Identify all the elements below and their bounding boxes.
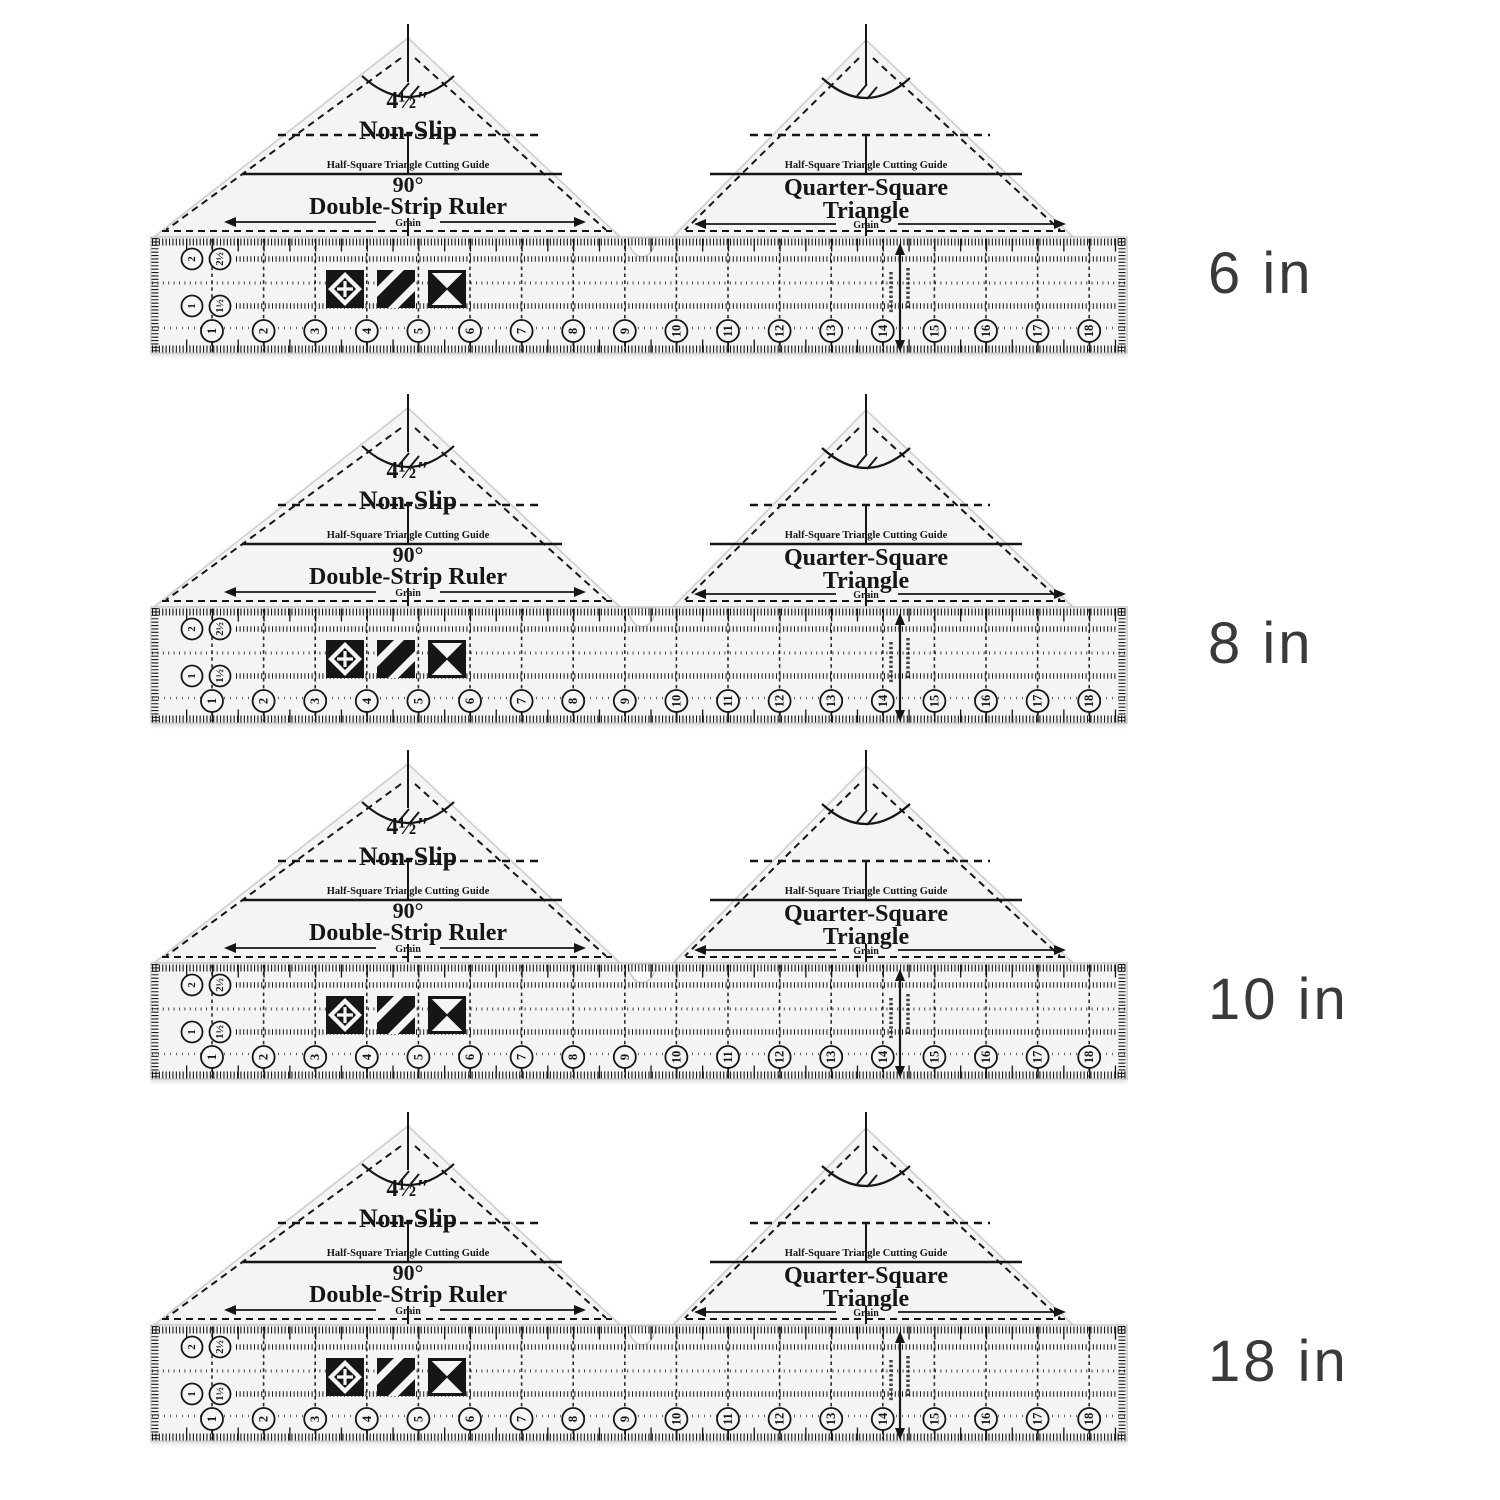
inch-number: 11 bbox=[721, 325, 735, 337]
ruler-set-graphic: 4½″ Non-Slip Half-Square Triangle Cuttin… bbox=[150, 22, 1128, 367]
inch-number: 16 bbox=[979, 1051, 993, 1064]
inch-number: 7 bbox=[515, 698, 529, 704]
inch-number: 7 bbox=[515, 328, 529, 334]
inch-number: 10 bbox=[669, 1051, 683, 1064]
square-in-square-block-icon bbox=[326, 640, 364, 678]
ruler-set-graphic: 4½″ Non-Slip Half-Square Triangle Cuttin… bbox=[150, 1110, 1128, 1455]
inch-number: 17 bbox=[1031, 1051, 1045, 1064]
inch-number: 4 bbox=[360, 327, 374, 334]
ruler-size-text: 4½″ bbox=[386, 88, 429, 114]
grain-text: Grain bbox=[395, 944, 421, 955]
inch-number: 4 bbox=[360, 1415, 374, 1422]
inch-number: 15 bbox=[927, 1051, 941, 1064]
diagonal-stripes-block-icon bbox=[377, 1358, 415, 1396]
inch-number: 9 bbox=[618, 698, 632, 704]
strip-width-number: 1½ bbox=[214, 299, 226, 313]
hourglass-block-icon bbox=[428, 640, 466, 678]
size-label: 6 in bbox=[1208, 242, 1314, 306]
ruler-title-text: Double-Strip Ruler bbox=[309, 564, 507, 590]
inch-number: 13 bbox=[824, 695, 838, 708]
ruler-set-row: 4½″ Non-Slip Half-Square Triangle Cuttin… bbox=[0, 1110, 1500, 1455]
inch-number: 6 bbox=[463, 1416, 477, 1422]
inch-number: 6 bbox=[463, 698, 477, 704]
inch-number: 3 bbox=[308, 1416, 322, 1422]
cutting-guide-text: Half-Square Triangle Cutting Guide bbox=[785, 1248, 948, 1259]
cutting-guide-text: Half-Square Triangle Cutting Guide bbox=[785, 886, 948, 897]
inch-number: 4 bbox=[360, 1053, 374, 1060]
inch-number: 11 bbox=[721, 1413, 735, 1425]
grain-text: Grain bbox=[395, 218, 421, 229]
inch-number: 10 bbox=[669, 325, 683, 338]
ruler-title-text: Double-Strip Ruler bbox=[309, 194, 507, 220]
inch-number: 7 bbox=[515, 1054, 529, 1060]
strip-width-number: 1½ bbox=[214, 1387, 226, 1401]
square-in-square-block-icon bbox=[326, 996, 364, 1034]
inch-number: 13 bbox=[824, 1413, 838, 1426]
inch-number: 2 bbox=[257, 1416, 271, 1422]
strip-width-number: 1½ bbox=[214, 669, 226, 683]
inch-number: 16 bbox=[979, 325, 993, 338]
ruler-set-row: 4½″ Non-Slip Half-Square Triangle Cuttin… bbox=[0, 22, 1500, 367]
inch-number: 17 bbox=[1031, 325, 1045, 338]
product-collage: 4½″ Non-Slip Half-Square Triangle Cuttin… bbox=[0, 0, 1500, 1500]
inch-number: 14 bbox=[876, 324, 890, 337]
inch-number: 1 bbox=[205, 328, 219, 334]
inch-number: 18 bbox=[1082, 695, 1096, 708]
ruler-set-graphic: 4½″ Non-Slip Half-Square Triangle Cuttin… bbox=[150, 392, 1128, 737]
inch-number: 1 bbox=[205, 1416, 219, 1422]
hourglass-block-icon bbox=[428, 1358, 466, 1396]
ruler-set-row: 4½″ Non-Slip Half-Square Triangle Cuttin… bbox=[0, 748, 1500, 1093]
inch-number: 2 bbox=[257, 1054, 271, 1060]
square-in-square-block-icon bbox=[326, 270, 364, 308]
inch-number: 8 bbox=[566, 698, 580, 704]
inch-number: 4 bbox=[360, 697, 374, 704]
strip-width-number: 1½ bbox=[214, 1025, 226, 1039]
cutting-guide-text: Half-Square Triangle Cutting Guide bbox=[327, 886, 490, 897]
inch-number: 1 bbox=[205, 698, 219, 704]
inch-number: 11 bbox=[721, 1051, 735, 1063]
strip-width-number: 2 bbox=[186, 626, 198, 632]
inch-number: 9 bbox=[618, 328, 632, 334]
hourglass-block-icon bbox=[428, 996, 466, 1034]
ruler-set-graphic: 4½″ Non-Slip Half-Square Triangle Cuttin… bbox=[150, 748, 1128, 1093]
inch-number: 13 bbox=[824, 1051, 838, 1064]
inch-number: 12 bbox=[773, 325, 787, 338]
inch-number: 10 bbox=[669, 695, 683, 708]
inch-number: 5 bbox=[411, 1054, 425, 1060]
inch-number: 15 bbox=[927, 695, 941, 708]
nonslip-text: Non-Slip bbox=[359, 842, 457, 871]
nonslip-text: Non-Slip bbox=[359, 486, 457, 515]
strip-width-number: 2 bbox=[186, 256, 198, 262]
inch-number: 16 bbox=[979, 1413, 993, 1426]
size-label: 18 in bbox=[1208, 1330, 1349, 1394]
inch-number: 12 bbox=[773, 695, 787, 708]
inch-number: 16 bbox=[979, 695, 993, 708]
inch-number: 5 bbox=[411, 1416, 425, 1422]
inch-number: 8 bbox=[566, 1054, 580, 1060]
inch-number: 10 bbox=[669, 1413, 683, 1426]
ruler-size-text: 4½″ bbox=[386, 814, 429, 840]
diagonal-stripes-block-icon bbox=[377, 996, 415, 1034]
inch-number: 3 bbox=[308, 328, 322, 334]
grain-text: Grain bbox=[853, 590, 879, 601]
inch-number: 18 bbox=[1082, 325, 1096, 338]
square-in-square-block-icon bbox=[326, 1358, 364, 1396]
inch-number: 14 bbox=[876, 1412, 890, 1425]
inch-number: 9 bbox=[618, 1054, 632, 1060]
ruler-set-row: 4½″ Non-Slip Half-Square Triangle Cuttin… bbox=[0, 392, 1500, 737]
strip-width-number: 1 bbox=[186, 303, 198, 309]
grain-text: Grain bbox=[853, 1308, 879, 1319]
ruler-size-text: 4½″ bbox=[386, 1176, 429, 1202]
inch-number: 1 bbox=[205, 1054, 219, 1060]
inch-number: 14 bbox=[876, 694, 890, 707]
inch-number: 2 bbox=[257, 698, 271, 704]
inch-number: 18 bbox=[1082, 1413, 1096, 1426]
strip-width-number: 2½ bbox=[214, 978, 226, 992]
inch-number: 18 bbox=[1082, 1051, 1096, 1064]
inch-number: 14 bbox=[876, 1050, 890, 1063]
grain-text: Grain bbox=[395, 1306, 421, 1317]
strip-width-number: 2 bbox=[186, 982, 198, 988]
cutting-guide-text: Half-Square Triangle Cutting Guide bbox=[785, 530, 948, 541]
diagonal-stripes-block-icon bbox=[377, 270, 415, 308]
inch-number: 15 bbox=[927, 325, 941, 338]
inch-number: 6 bbox=[463, 328, 477, 334]
strip-width-number: 1 bbox=[186, 1029, 198, 1035]
inch-number: 2 bbox=[257, 328, 271, 334]
cutting-guide-text: Half-Square Triangle Cutting Guide bbox=[327, 1248, 490, 1259]
grain-text: Grain bbox=[395, 588, 421, 599]
inch-number: 8 bbox=[566, 328, 580, 334]
nonslip-text: Non-Slip bbox=[359, 116, 457, 145]
grain-text: Grain bbox=[853, 946, 879, 957]
size-label: 10 in bbox=[1208, 968, 1349, 1032]
inch-number: 12 bbox=[773, 1051, 787, 1064]
ruler-title-text: Double-Strip Ruler bbox=[309, 1282, 507, 1308]
inch-number: 17 bbox=[1031, 1413, 1045, 1426]
size-label: 8 in bbox=[1208, 612, 1314, 676]
inch-number: 9 bbox=[618, 1416, 632, 1422]
cutting-guide-text: Half-Square Triangle Cutting Guide bbox=[327, 160, 490, 171]
inch-number: 7 bbox=[515, 1416, 529, 1422]
inch-number: 15 bbox=[927, 1413, 941, 1426]
nonslip-text: Non-Slip bbox=[359, 1204, 457, 1233]
strip-width-number: 1 bbox=[186, 673, 198, 679]
inch-number: 8 bbox=[566, 1416, 580, 1422]
diagonal-stripes-block-icon bbox=[377, 640, 415, 678]
inch-number: 3 bbox=[308, 1054, 322, 1060]
inch-number: 13 bbox=[824, 325, 838, 338]
grain-text: Grain bbox=[853, 220, 879, 231]
inch-number: 11 bbox=[721, 695, 735, 707]
inch-number: 17 bbox=[1031, 695, 1045, 708]
inch-number: 5 bbox=[411, 698, 425, 704]
strip-width-number: 2 bbox=[186, 1344, 198, 1350]
inch-number: 6 bbox=[463, 1054, 477, 1060]
inch-number: 5 bbox=[411, 328, 425, 334]
inch-number: 12 bbox=[773, 1413, 787, 1426]
strip-width-number: 2½ bbox=[214, 1340, 226, 1354]
inch-number: 3 bbox=[308, 698, 322, 704]
cutting-guide-text: Half-Square Triangle Cutting Guide bbox=[327, 530, 490, 541]
ruler-size-text: 4½″ bbox=[386, 458, 429, 484]
hourglass-block-icon bbox=[428, 270, 466, 308]
strip-width-number: 2½ bbox=[214, 252, 226, 266]
strip-width-number: 1 bbox=[186, 1391, 198, 1397]
ruler-title-text: Double-Strip Ruler bbox=[309, 920, 507, 946]
cutting-guide-text: Half-Square Triangle Cutting Guide bbox=[785, 160, 948, 171]
strip-width-number: 2½ bbox=[214, 622, 226, 636]
